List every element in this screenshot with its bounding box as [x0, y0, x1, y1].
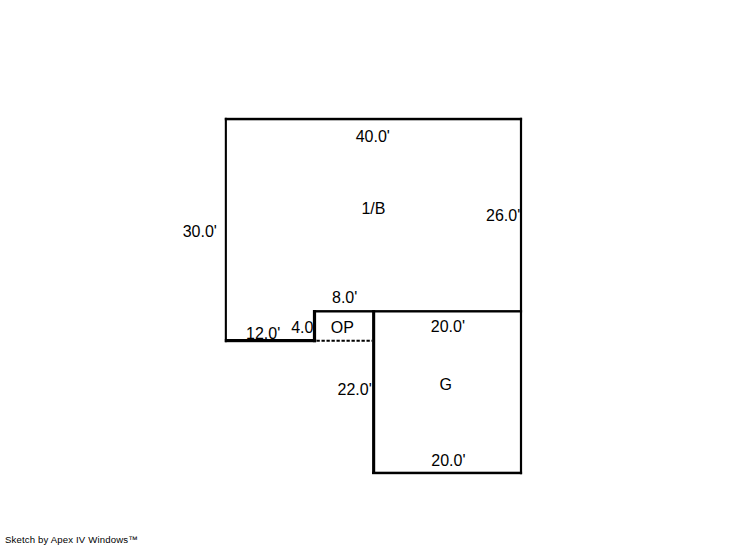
- svg-text:20.0': 20.0': [431, 452, 465, 469]
- svg-text:20.0': 20.0': [431, 318, 465, 335]
- svg-text:22.0': 22.0': [338, 381, 372, 398]
- svg-text:8.0': 8.0': [332, 289, 357, 306]
- svg-text:OP: OP: [331, 319, 354, 336]
- svg-text:4.0: 4.0: [291, 319, 313, 336]
- svg-text:40.0': 40.0': [356, 128, 390, 145]
- svg-text:Sketch by Apex IV Windows™: Sketch by Apex IV Windows™: [5, 534, 138, 545]
- svg-text:1/B: 1/B: [361, 200, 385, 217]
- svg-text:30.0': 30.0': [183, 223, 217, 240]
- svg-text:26.0': 26.0': [486, 207, 520, 224]
- svg-text:12.0': 12.0': [246, 325, 280, 342]
- svg-text:G: G: [440, 376, 452, 393]
